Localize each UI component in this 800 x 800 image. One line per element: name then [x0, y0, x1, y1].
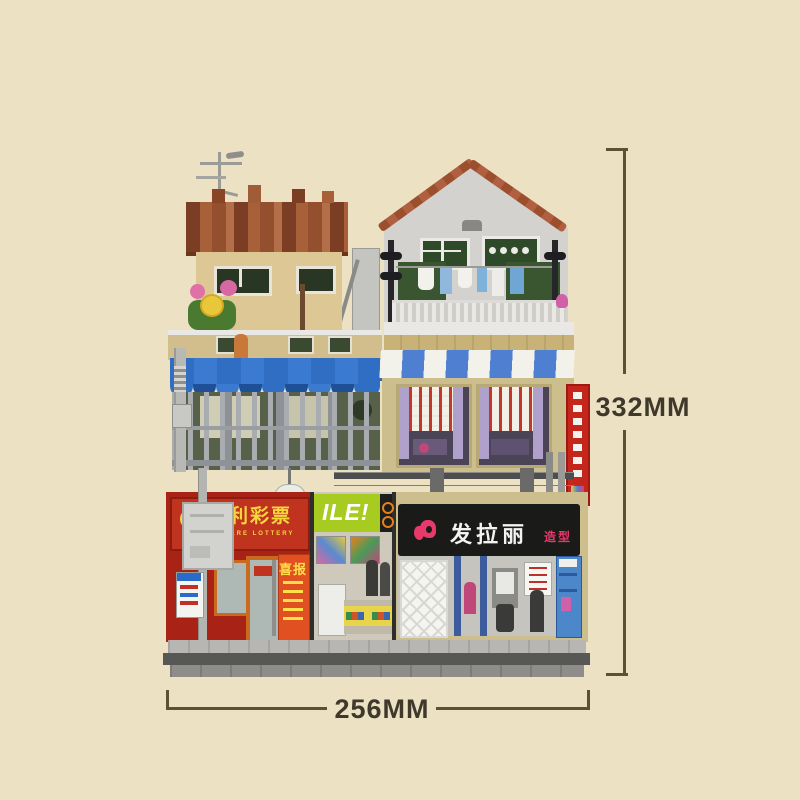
product-dimension-image: 福利彩票 WELFARE LOTTERY 喜报	[0, 0, 800, 800]
dimension-width: 256MM	[0, 0, 800, 800]
width-label: 256MM	[330, 694, 434, 725]
width-line-left	[166, 707, 327, 710]
width-tick-right	[587, 690, 590, 710]
width-line-right	[436, 707, 590, 710]
